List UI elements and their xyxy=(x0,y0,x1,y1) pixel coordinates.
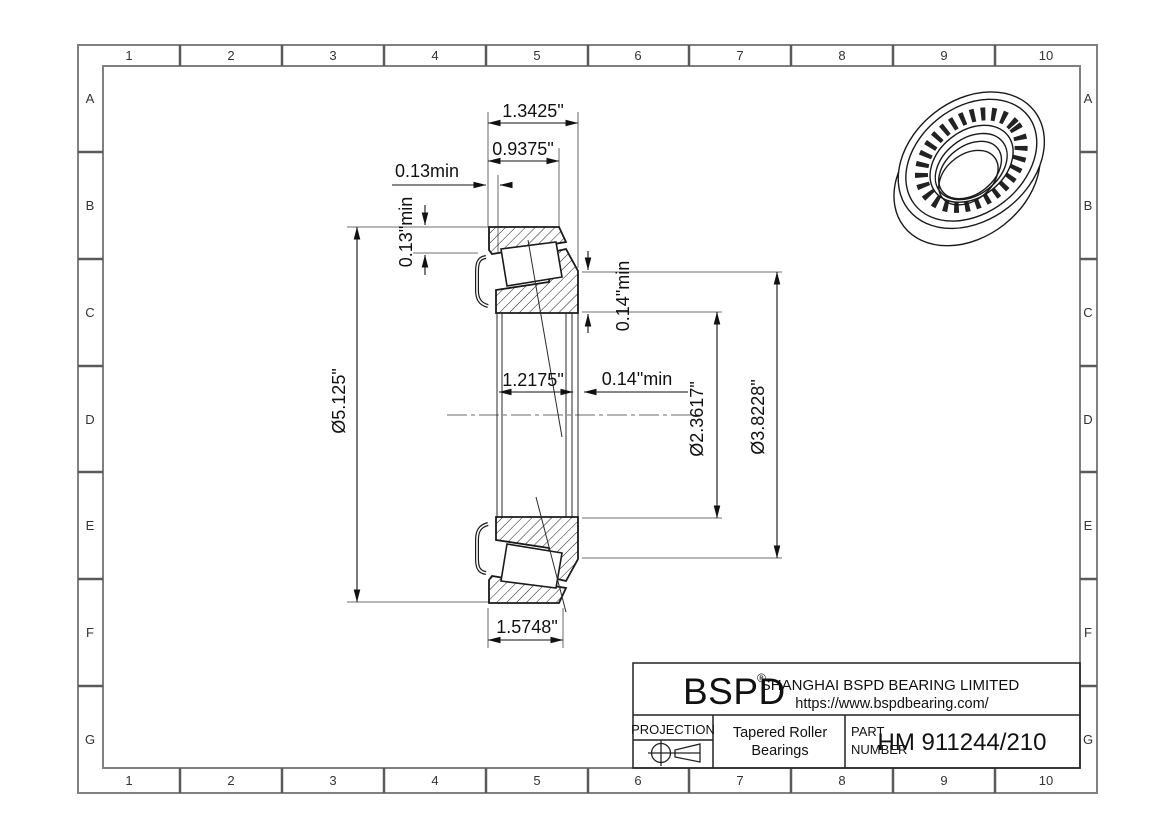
grid-row-label: B xyxy=(86,198,95,213)
grid-row-label: E xyxy=(1084,518,1093,533)
grid-row-label: B xyxy=(1084,198,1093,213)
grid-row-label: E xyxy=(86,518,95,533)
company-website: https://www.bspdbearing.com/ xyxy=(795,696,989,712)
grid-col-label: 1 xyxy=(125,773,132,788)
dim-back-clearance-radial: 0.14"min xyxy=(613,261,633,331)
grid-col-label: 7 xyxy=(736,773,743,788)
grid-col-label: 3 xyxy=(329,48,336,63)
bearing-section-view: 1.3425" 0.9375" 0.13min 0.13"min 1.2175"… xyxy=(329,101,782,648)
grid-col-label: 8 xyxy=(838,48,845,63)
grid-col-label: 5 xyxy=(533,48,540,63)
dim-cone-width: 1.5748" xyxy=(496,617,557,637)
grid-row-label: C xyxy=(85,305,94,320)
bearing-3d-view xyxy=(860,64,1078,274)
grid-col-label: 1 xyxy=(125,48,132,63)
grid-col-label: 10 xyxy=(1039,773,1053,788)
dim-outer-diameter: Ø5.125" xyxy=(329,368,349,433)
title-block: BSPD ® SHANGHAI BSPD BEARING LIMITED htt… xyxy=(631,663,1080,768)
grid-row-label: C xyxy=(1083,305,1092,320)
dim-bore-diameter: Ø2.3617" xyxy=(687,381,707,456)
grid-col-label: 4 xyxy=(431,773,438,788)
drawing-sheet: 1 2 3 4 5 6 7 8 9 10 1 2 3 4 5 6 7 8 9 1… xyxy=(0,0,1170,827)
grid-col-label: 9 xyxy=(940,48,947,63)
grid-col-label: 4 xyxy=(431,48,438,63)
grid-col-label: 10 xyxy=(1039,48,1053,63)
dim-flange-diameter: Ø3.8228" xyxy=(748,379,768,454)
grid-col-label: 6 xyxy=(634,48,641,63)
company-name: SHANGHAI BSPD BEARING LIMITED xyxy=(761,677,1020,694)
dim-cup-width: 0.9375" xyxy=(492,139,553,159)
grid-col-label: 5 xyxy=(533,773,540,788)
grid-col-label: 3 xyxy=(329,773,336,788)
product-type-line2: Bearings xyxy=(751,743,808,759)
dim-overall-width: 1.3425" xyxy=(502,101,563,121)
grid-row-label: G xyxy=(85,732,95,747)
grid-row-label: F xyxy=(86,625,94,640)
dim-cone-front-width: 1.2175" xyxy=(502,370,563,390)
grid-col-label: 8 xyxy=(838,773,845,788)
dim-front-clearance-radial: 0.13"min xyxy=(396,197,416,267)
grid-row-label: D xyxy=(85,412,94,427)
part-number: HM 911244/210 xyxy=(877,729,1046,756)
grid-row-label: D xyxy=(1083,412,1092,427)
product-type-line1: Tapered Roller xyxy=(733,725,827,741)
first-angle-projection-icon xyxy=(648,740,700,766)
dim-back-clearance: 0.14"min xyxy=(602,369,672,389)
dim-front-clearance: 0.13min xyxy=(395,161,459,181)
grid-col-label: 6 xyxy=(634,773,641,788)
grid-col-label: 2 xyxy=(227,48,234,63)
grid-col-label: 7 xyxy=(736,48,743,63)
projection-label: PROJECTION xyxy=(631,722,715,737)
grid-row-label: A xyxy=(1084,91,1093,106)
grid-row-label: G xyxy=(1083,732,1093,747)
grid-row-label: A xyxy=(86,91,95,106)
engineering-drawing: 1 2 3 4 5 6 7 8 9 10 1 2 3 4 5 6 7 8 9 1… xyxy=(0,0,1170,827)
grid-col-label: 9 xyxy=(940,773,947,788)
grid-row-label: F xyxy=(1084,625,1092,640)
grid-col-label: 2 xyxy=(227,773,234,788)
